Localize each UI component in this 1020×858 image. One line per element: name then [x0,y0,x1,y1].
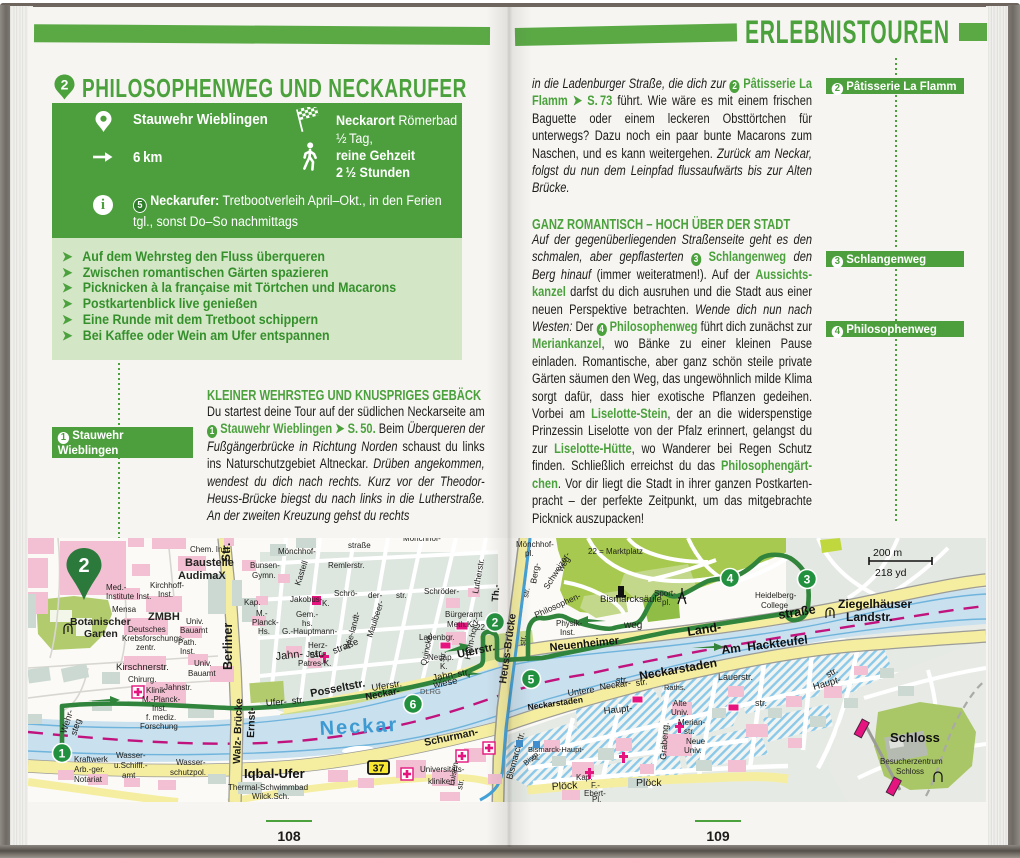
svg-text:Med.-: Med.- [106,583,127,592]
svg-text:u.Schifff.-: u.Schifff.- [114,761,148,770]
svg-text:Landstr.: Landstr. [846,610,893,624]
svg-text:Institute Inst.: Institute Inst. [106,592,151,601]
svg-text:Physik-: Physik- [556,619,583,628]
svg-text:4: 4 [727,572,734,586]
svg-text:Ziegelhäuser: Ziegelhäuser [838,597,912,611]
svg-text:Garten: Garten [84,628,118,640]
svg-text:Planck-: Planck- [252,618,279,627]
svg-text:G.-Hauptmann-: G.-Hauptmann- [282,627,337,636]
svg-text:Inst.: Inst. [152,704,167,713]
svg-text:Botanischer: Botanischer [70,616,131,628]
svg-text:Inst.: Inst. [158,590,173,599]
svg-text:Univ.: Univ. [194,659,212,668]
svg-text:Kap.: Kap. [576,773,592,782]
svg-text:Mönchhof-: Mönchhof- [516,540,554,549]
svg-text:Lauerstr.: Lauerstr. [718,672,753,682]
svg-text:str.: str. [437,650,448,662]
svg-text:Thermal-Schwimmbad: Thermal-Schwimmbad [228,783,308,792]
svg-text:Forschung: Forschung [140,722,178,731]
svg-text:Besucherzentrum: Besucherzentrum [880,757,943,766]
svg-text:pl.: pl. [525,549,533,558]
svg-text:str.: str. [455,778,466,790]
svg-text:Inst.: Inst. [180,647,195,656]
svg-text:Sport-: Sport- [654,589,676,598]
svg-text:hs.: hs. [302,619,313,628]
svg-text:Iqbal-Ufer: Iqbal-Ufer [244,766,305,781]
svg-text:Wasser-: Wasser- [116,751,146,760]
svg-text:Wilck.Sch.: Wilck.Sch. [252,792,289,801]
svg-text:f. mediz.: f. mediz. [146,713,176,722]
svg-text:str.: str. [755,698,767,708]
svg-text:Alte: Alte [673,699,687,708]
svg-text:Hs.: Hs. [258,627,270,636]
svg-text:Deutsches: Deutsches [128,625,166,634]
svg-text:K.: K. [322,599,330,608]
svg-text:Bunsen-: Bunsen- [250,561,280,570]
svg-text:Gymn.: Gymn. [252,571,276,580]
svg-text:2: 2 [492,616,499,630]
svg-text:Kirchhoff-: Kirchhoff- [150,581,184,590]
svg-text:str.: str. [291,695,305,707]
svg-text:Arb.-ger.: Arb.-ger. [74,765,105,774]
svg-text:zentr.: zentr. [136,643,156,652]
svg-text:AudimaX: AudimaX [178,570,226,582]
svg-text:Bismarcksäule: Bismarcksäule [600,594,662,605]
svg-text:22 = Marktplatz: 22 = Marktplatz [588,547,643,556]
svg-text:Walz- Brücke: Walz- Brücke [231,698,245,764]
svg-text:Merian-: Merian- [678,718,705,727]
svg-text:Jahnstr.: Jahnstr. [164,683,192,692]
svg-text:Mensa: Mensa [112,605,137,614]
svg-text:1: 1 [59,747,66,761]
svg-text:Wasser-: Wasser- [176,758,206,767]
svg-text:M.-Planck-: M.-Planck- [142,695,181,704]
svg-text:Chirurg.: Chirurg. [128,675,156,684]
svg-text:2: 2 [78,555,89,577]
svg-text:Th.-: Th.- [490,584,502,602]
svg-text:Plöck: Plöck [551,779,578,793]
svg-text:straße: straße [348,541,371,550]
svg-text:str.: str. [521,587,532,598]
svg-text:schutzpol.: schutzpol. [170,768,206,777]
svg-text:200 m: 200 m [873,547,902,559]
svg-text:der-: der- [368,591,383,600]
svg-text:Inst.: Inst. [560,628,575,637]
svg-text:Bauamt: Bauamt [180,626,208,635]
svg-text:Mönchhof-: Mönchhof- [403,538,441,543]
svg-text:ZMBH: ZMBH [148,611,180,623]
svg-text:Gem.-: Gem.- [296,610,319,619]
svg-text:Krebsforschungs-: Krebsforschungs- [122,634,185,643]
svg-text:Neue: Neue [686,737,706,746]
svg-text:2: 2 [61,77,69,93]
svg-text:Mönchhof-: Mönchhof- [278,547,316,556]
svg-text:amt: amt [122,771,136,780]
svg-text:Ufer-: Ufer- [265,697,287,709]
svg-text:3: 3 [804,573,811,587]
svg-text:Berliner: Berliner [221,623,235,670]
svg-text:Notariat: Notariat [74,775,103,784]
svg-text:Univ.: Univ. [684,746,702,755]
svg-text:str.: str. [684,727,695,736]
svg-text:Schröder-: Schröder- [424,587,459,596]
svg-text:Jakobus-: Jakobus- [290,595,323,604]
svg-text:Kap.: Kap. [244,598,260,607]
svg-text:Schloss: Schloss [896,767,924,776]
svg-text:pl.: pl. [662,598,670,607]
svg-text:Schloss: Schloss [890,730,940,745]
svg-text:Univ.: Univ. [186,617,204,626]
svg-text:Kraftwerk: Kraftwerk [74,755,109,764]
svg-text:218 yd: 218 yd [875,567,907,579]
svg-text:weg: weg [623,620,642,631]
svg-text:Remlerstr.: Remlerstr. [328,561,364,570]
svg-text:5: 5 [528,673,535,687]
svg-text:str.: str. [518,635,528,646]
svg-text:Raths.: Raths. [664,683,686,692]
svg-text:Pl.: Pl. [592,795,601,802]
svg-text:Bauamt: Bauamt [188,669,216,678]
svg-text:M.-: M.- [256,609,268,618]
svg-text:Heidelberg-: Heidelberg- [755,591,797,600]
svg-text:Path.: Path. [178,638,197,647]
svg-text:str.: str. [457,667,471,680]
svg-text:str.: str. [396,591,407,600]
svg-text:Ernst-: Ernst- [245,707,258,738]
svg-text:Schrö-: Schrö- [334,589,358,598]
svg-text:Str.: Str. [219,543,233,562]
svg-text:Plöck: Plöck [636,777,662,789]
svg-text:Univ.: Univ. [671,708,689,717]
svg-text:str.: str. [309,648,325,661]
svg-text:6: 6 [410,698,417,712]
svg-text:Kirschnerstr.: Kirschnerstr. [116,662,169,673]
svg-text:37: 37 [373,763,385,775]
svg-text:Neckar: Neckar [319,714,399,740]
